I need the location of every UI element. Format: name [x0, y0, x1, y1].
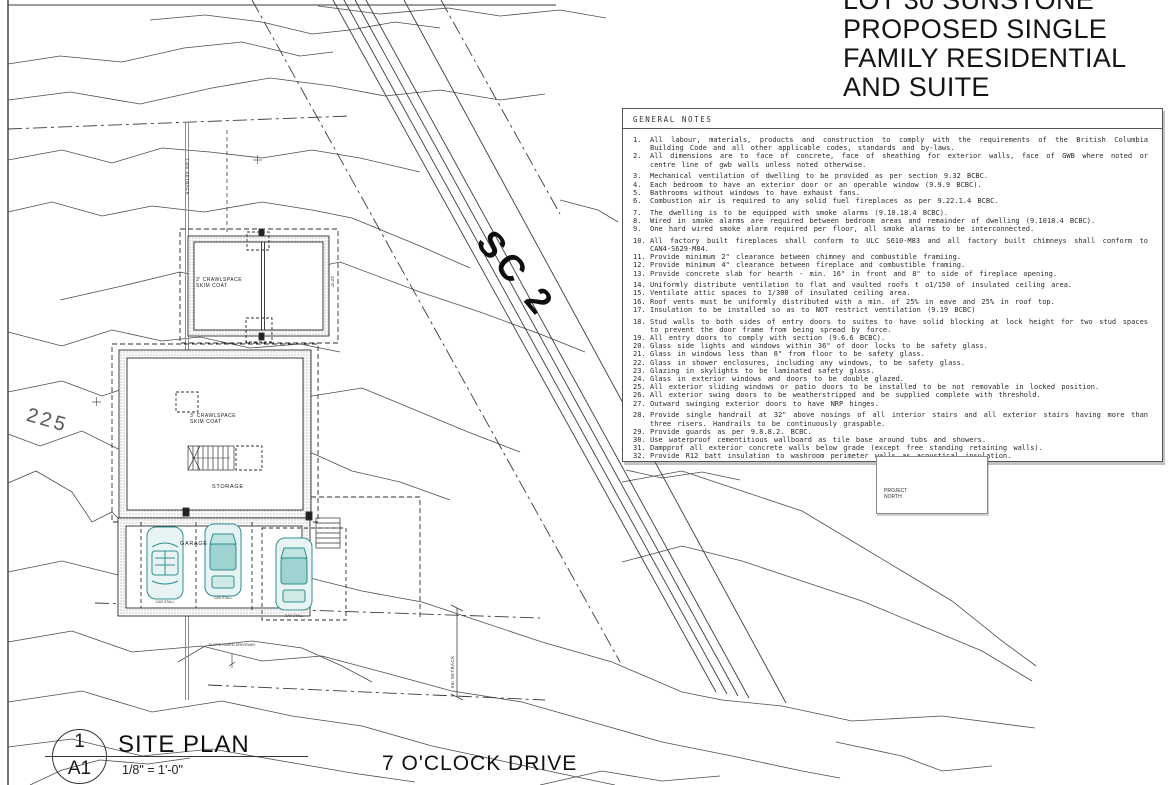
garage-label: GARAGE: [180, 541, 208, 547]
general-note: 6.Combustion air is required to any soli…: [633, 197, 1148, 205]
general-note: 22.Glass in shower enclosures, including…: [633, 359, 1148, 367]
driveway-note: SLOPE PAVED DRIVEWAY: [204, 643, 260, 648]
general-note: 12.Provide minimum 4" clearance between …: [633, 261, 1148, 269]
crawlspace-upper-label: 3' CRAWLSPACE SKIM COAT: [196, 277, 244, 290]
dimension-label-22ft: 22'-0": [330, 276, 335, 287]
crawlspace-lower-label: 3' CRAWLSPACE SKIM COAT: [190, 413, 238, 426]
general-note: 19.All entry doors to comply with sectio…: [633, 334, 1148, 342]
general-note: 5.Bathrooms without windows to have exha…: [633, 189, 1148, 197]
general-note: 21.Glass in windows less than 8" from fl…: [633, 350, 1148, 358]
general-note: 16.Roof vents must be uniformly distribu…: [633, 298, 1148, 306]
general-note: 26.All exterior swing doors to be weathe…: [633, 391, 1148, 399]
drawing-sheet: LOT 30 SUNSTONE PROPOSED SINGLE FAMILY R…: [0, 0, 1170, 785]
car-icon: [205, 524, 241, 596]
stairs-exterior: [316, 518, 340, 548]
general-note: 23.Glazing in skylights to be laminated …: [633, 367, 1148, 375]
general-note: 10.All factory built fireplaces shall co…: [633, 237, 1148, 253]
general-note: 30.Use waterproof cementitious wallboard…: [633, 436, 1148, 444]
general-note: 15.Ventilate attic spaces to 1/300 of in…: [633, 289, 1148, 297]
project-north-box: [876, 456, 988, 514]
driveway-leader: [229, 654, 235, 668]
project-title-line: LOT 30 SUNSTONE: [843, 0, 1126, 15]
general-note: 31.Dampprof all exterior concrete walls …: [633, 444, 1148, 452]
general-note: 2.All dimensions are to face of concrete…: [633, 152, 1148, 168]
setback-label-6m: 6m SETBACK: [450, 655, 455, 688]
detail-number: 1: [52, 731, 107, 753]
project-north-line2: NORTH: [884, 494, 907, 500]
general-note: 29.Provide guards as per 9.8.8.2. BCBC.: [633, 428, 1148, 436]
general-note: 14.Uniformly distribute ventilation to f…: [633, 281, 1148, 289]
car-stall-label: CAR STALL: [274, 614, 314, 618]
general-note: 7.The dwelling is to be equipped with sm…: [633, 209, 1148, 217]
project-title: LOT 30 SUNSTONE PROPOSED SINGLE FAMILY R…: [843, 0, 1126, 102]
general-note: 9.One hard wired smoke alarm required pe…: [633, 225, 1148, 233]
general-note: 24.Glass in exterior windows and doors t…: [633, 375, 1148, 383]
sheet-number: A1: [52, 758, 107, 780]
general-note: 17.Insulation to be installed so as to N…: [633, 306, 1148, 314]
general-note: 8.Wired in smoke alarms are required bet…: [633, 217, 1148, 225]
general-note: 20.Glass side lights and windows within …: [633, 342, 1148, 350]
car-stall-label: CAR STALL: [145, 600, 185, 604]
general-note: 11.Provide minimum 2" clearance between …: [633, 253, 1148, 261]
car-stall-label: CAR STALL: [203, 596, 243, 600]
project-title-line: FAMILY RESIDENTIAL: [843, 44, 1126, 73]
general-note: 18.Stud walls to both sides of entry doo…: [633, 318, 1148, 334]
general-notes-box: GENERAL NOTES 1.All labour, materials, p…: [622, 108, 1163, 462]
general-note: 13.Provide concrete slab for hearth - mi…: [633, 270, 1148, 278]
view-scale: 1/8" = 1'-0": [122, 763, 183, 777]
project-title-line: AND SUITE: [843, 73, 1126, 102]
car-icon: [147, 527, 183, 599]
view-title: SITE PLAN: [118, 731, 250, 759]
property-lines: [8, 0, 620, 700]
crawlspace-lower-outline: [112, 344, 318, 522]
storage-label: STORAGE: [212, 484, 244, 490]
car-icon: [276, 538, 312, 610]
setback-label-7-5m: 7.5m SETBACK: [185, 158, 190, 195]
general-notes-header: GENERAL NOTES: [623, 109, 1162, 129]
street-name: 7 O'CLOCK DRIVE: [382, 752, 577, 776]
general-note: 25.All exterior sliding windows or patio…: [633, 383, 1148, 391]
general-note: 4.Each bedroom to have an exterior door …: [633, 181, 1148, 189]
project-north-label: PROJECT NORTH: [884, 488, 907, 500]
general-note: 28.Provide single handrail at 32" above …: [633, 411, 1148, 427]
general-note: 3.Mechanical ventilation of dwelling to …: [633, 172, 1148, 180]
general-note: 27.Outward swinging exterior doors to ha…: [633, 400, 1148, 408]
general-note: 1.All labour, materials, products and co…: [633, 136, 1148, 152]
project-title-line: PROPOSED SINGLE: [843, 15, 1126, 44]
general-notes-list: 1.All labour, materials, products and co…: [623, 129, 1162, 461]
